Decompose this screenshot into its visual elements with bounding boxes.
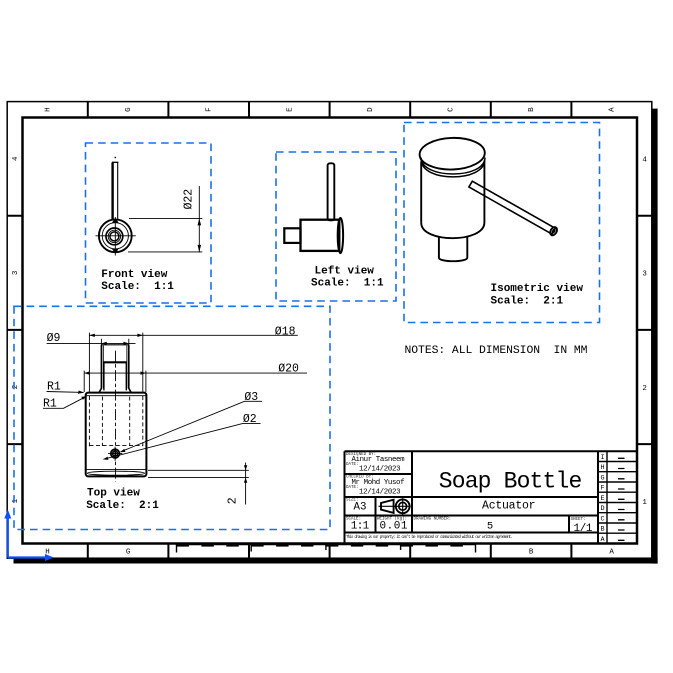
svg-text:A3: A3 [354,502,367,514]
svg-text:Ø2: Ø2 [243,413,257,426]
svg-text:4: 4 [12,156,20,161]
svg-text:2: 2 [226,497,239,504]
svg-text:This drawing is our property;: This drawing is our property; it can't b… [346,535,513,540]
svg-text:B: B [529,549,534,557]
svg-text:Ainur Tasneem: Ainur Tasneem [352,456,406,464]
svg-text:1/1: 1/1 [574,523,593,535]
svg-text:Scale: 1:1: Scale: 1:1 [101,281,174,293]
svg-text:2: 2 [642,385,647,393]
svg-text:1: 1 [12,498,20,503]
svg-text:F: F [206,107,214,112]
svg-text:I: I [600,454,604,462]
svg-text:G: G [126,549,131,557]
svg-text:G: G [600,474,604,482]
svg-text:0.01: 0.01 [380,521,408,533]
svg-text:A: A [609,549,614,557]
svg-text:G: G [125,107,133,112]
svg-text:Soap Bottle: Soap Bottle [439,469,583,495]
svg-text:12/14/2023: 12/14/2023 [359,465,401,473]
svg-text:D: D [600,505,604,513]
svg-text:Scale: 1:1: Scale: 1:1 [311,278,384,290]
svg-text:SHEET:: SHEET: [571,518,586,522]
svg-text:B: B [528,107,536,112]
svg-text:Top view: Top view [87,488,140,500]
svg-text:C: C [600,515,604,523]
svg-text:F: F [600,485,604,493]
svg-text:12/14/2023: 12/14/2023 [359,488,401,496]
svg-text:Isometric view: Isometric view [491,283,584,295]
svg-text:Actuator: Actuator [482,499,536,512]
svg-text:E: E [286,107,294,112]
svg-text:DATE:: DATE: [346,463,359,467]
svg-text:1:1: 1:1 [351,521,370,533]
svg-text:4: 4 [642,157,647,165]
svg-text:E: E [600,495,604,503]
svg-text:DATE:: DATE: [346,486,359,490]
svg-text:H: H [44,107,52,112]
svg-text:C: C [447,107,455,112]
svg-text:Front view: Front view [101,269,167,281]
svg-text:Scale: 2:1: Scale: 2:1 [86,500,159,512]
svg-text:DRAWING NUMBER:: DRAWING NUMBER: [414,518,452,522]
svg-text:Left view: Left view [315,266,375,278]
svg-text:Ø3: Ø3 [244,391,258,404]
svg-text:D: D [367,107,375,112]
svg-text:H: H [600,464,604,472]
svg-text:3: 3 [642,271,647,279]
svg-text:1: 1 [642,499,647,507]
svg-text:Scale: 2:1: Scale: 2:1 [491,296,564,308]
svg-text:NOTES: ALL DIMENSION IN MM: NOTES: ALL DIMENSION IN MM [405,345,588,357]
svg-text:5: 5 [487,521,493,533]
svg-text:Mr Mohd Yusof: Mr Mohd Yusof [352,479,405,487]
svg-text:A: A [609,107,617,112]
svg-text:B: B [600,526,604,534]
svg-text:3: 3 [12,270,20,275]
svg-text:2: 2 [12,385,20,390]
svg-text:Ø22: Ø22 [182,189,195,210]
svg-text:Ø18: Ø18 [275,326,296,339]
